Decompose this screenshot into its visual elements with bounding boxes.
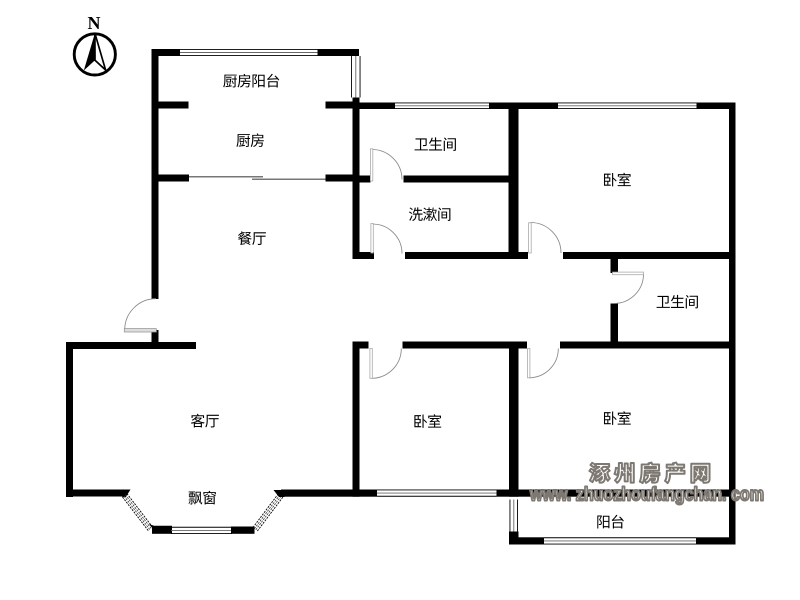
svg-text:N: N xyxy=(88,13,101,33)
svg-text:www. zhuozhoufangchan. com: www. zhuozhoufangchan. com xyxy=(529,485,764,506)
